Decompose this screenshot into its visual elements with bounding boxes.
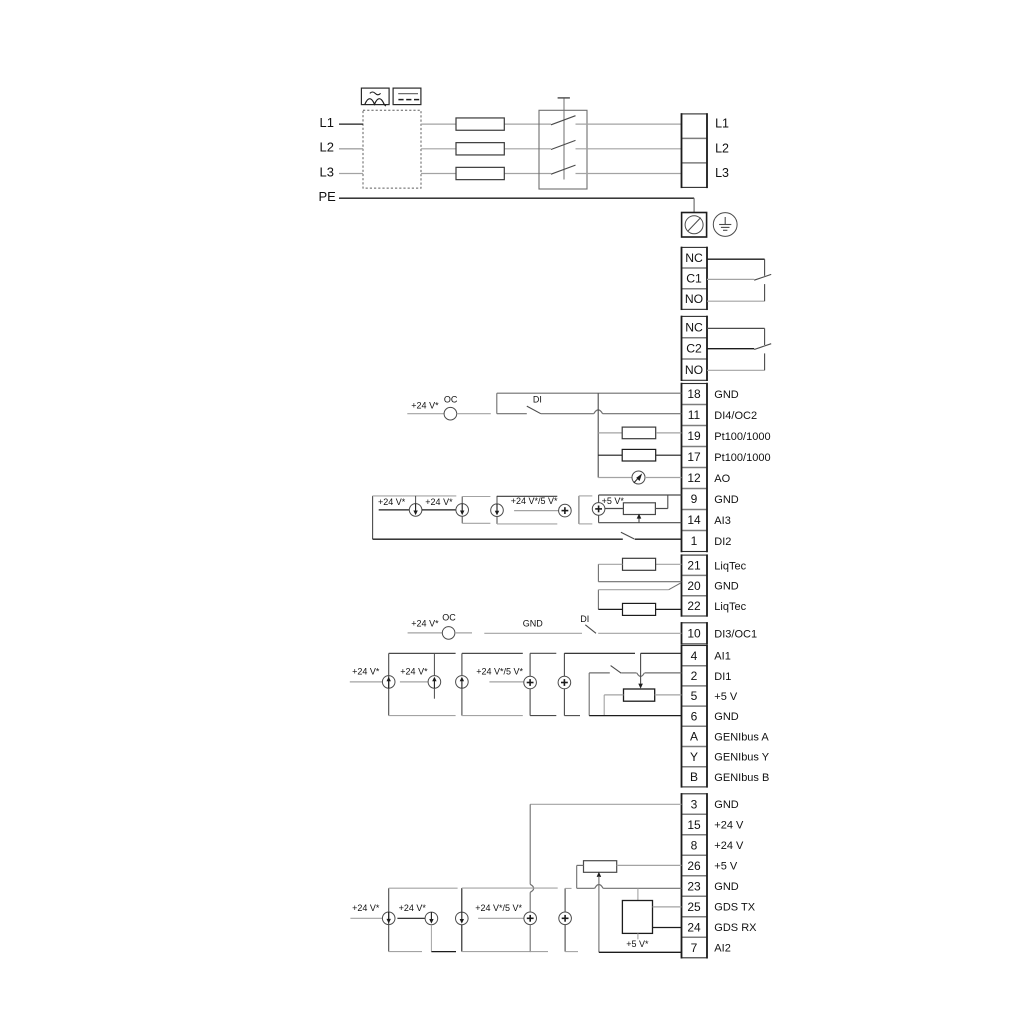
svg-text:26: 26 [687, 859, 701, 873]
svg-text:GND: GND [714, 494, 739, 506]
svg-text:+24 V*/5 V*: +24 V*/5 V* [511, 496, 558, 506]
svg-text:LiqTec: LiqTec [714, 601, 746, 613]
svg-text:AI3: AI3 [714, 515, 731, 527]
svg-text:11: 11 [688, 408, 701, 422]
svg-text:25: 25 [687, 900, 701, 914]
svg-text:+24 V*: +24 V* [400, 667, 428, 677]
svg-text:+24 V: +24 V [714, 820, 744, 832]
svg-text:AI1: AI1 [714, 651, 731, 663]
svg-text:C1: C1 [686, 272, 702, 286]
svg-text:GND: GND [714, 389, 739, 401]
svg-text:DI1: DI1 [714, 671, 731, 683]
svg-text:+24 V*/5 V*: +24 V*/5 V* [475, 903, 522, 913]
svg-text:GENIbus B: GENIbus B [714, 772, 769, 784]
svg-text:15: 15 [687, 818, 701, 832]
svg-text:+5 V: +5 V [714, 691, 738, 703]
svg-text:17: 17 [687, 450, 701, 464]
svg-text:DI: DI [580, 614, 589, 624]
svg-text:GDS TX: GDS TX [714, 902, 755, 914]
svg-text:LiqTec: LiqTec [714, 560, 746, 572]
svg-text:+24 V*: +24 V* [378, 497, 406, 507]
svg-text:GND: GND [714, 711, 739, 723]
svg-text:23: 23 [687, 879, 701, 893]
svg-text:19: 19 [687, 429, 701, 443]
svg-text:NO: NO [685, 363, 703, 377]
svg-text:DI2: DI2 [714, 536, 731, 548]
svg-text:L1: L1 [715, 117, 729, 131]
svg-text:B: B [690, 770, 698, 784]
svg-text:GDS RX: GDS RX [714, 922, 757, 934]
svg-text:3: 3 [691, 797, 698, 811]
svg-text:22: 22 [687, 599, 701, 613]
svg-text:+5 V: +5 V [714, 861, 738, 873]
svg-text:24: 24 [687, 920, 701, 934]
svg-text:Pt100/1000: Pt100/1000 [714, 431, 770, 443]
svg-text:Y: Y [690, 750, 698, 764]
svg-text:GND: GND [714, 799, 739, 811]
svg-text:+24 V*: +24 V* [411, 619, 439, 629]
svg-text:14: 14 [687, 513, 701, 527]
svg-text:OC: OC [444, 395, 458, 405]
svg-text:+24 V*: +24 V* [411, 401, 439, 411]
svg-text:2: 2 [691, 669, 698, 683]
svg-text:GENIbus A: GENIbus A [714, 731, 769, 743]
svg-text:21: 21 [687, 558, 701, 572]
svg-text:NC: NC [685, 320, 703, 334]
svg-text:PE: PE [319, 189, 337, 204]
svg-text:5: 5 [691, 689, 698, 703]
svg-text:C2: C2 [686, 342, 702, 356]
svg-text:18: 18 [687, 387, 701, 401]
svg-text:+24 V*/5 V*: +24 V*/5 V* [476, 667, 523, 677]
svg-text:4: 4 [691, 649, 698, 663]
svg-text:+24 V*: +24 V* [425, 497, 453, 507]
svg-text:10: 10 [687, 627, 701, 641]
svg-text:+24 V*: +24 V* [352, 667, 380, 677]
svg-text:6: 6 [691, 709, 698, 723]
svg-text:AI2: AI2 [714, 943, 731, 955]
svg-text:+24 V*: +24 V* [399, 903, 427, 913]
svg-text:+5 V*: +5 V* [602, 496, 625, 506]
svg-text:A: A [690, 730, 698, 744]
svg-text:OC: OC [442, 612, 456, 622]
svg-text:L1: L1 [320, 115, 334, 130]
svg-text:L2: L2 [715, 141, 729, 155]
svg-text:8: 8 [691, 838, 698, 852]
svg-text:L3: L3 [715, 166, 729, 180]
svg-text:L2: L2 [320, 140, 334, 155]
svg-text:AO: AO [714, 473, 730, 485]
svg-text:7: 7 [691, 941, 698, 955]
svg-text:9: 9 [691, 492, 698, 506]
svg-text:DI3/OC1: DI3/OC1 [714, 628, 757, 640]
svg-text:NC: NC [685, 251, 703, 265]
svg-text:NO: NO [685, 292, 703, 306]
svg-text:GND: GND [714, 881, 739, 893]
svg-text:20: 20 [687, 579, 701, 593]
svg-text:L3: L3 [320, 164, 334, 179]
svg-text:+5 V*: +5 V* [626, 939, 649, 949]
svg-text:DI4/OC2: DI4/OC2 [714, 410, 757, 422]
svg-text:1: 1 [691, 534, 698, 548]
svg-text:GENIbus Y: GENIbus Y [714, 752, 769, 764]
svg-text:GND: GND [523, 619, 544, 629]
svg-text:Pt100/1000: Pt100/1000 [714, 452, 770, 464]
svg-text:12: 12 [687, 471, 701, 485]
svg-text:+24 V*: +24 V* [352, 903, 380, 913]
svg-text:DI: DI [533, 395, 542, 405]
svg-text:+24 V: +24 V [714, 840, 744, 852]
svg-text:GND: GND [714, 581, 739, 593]
